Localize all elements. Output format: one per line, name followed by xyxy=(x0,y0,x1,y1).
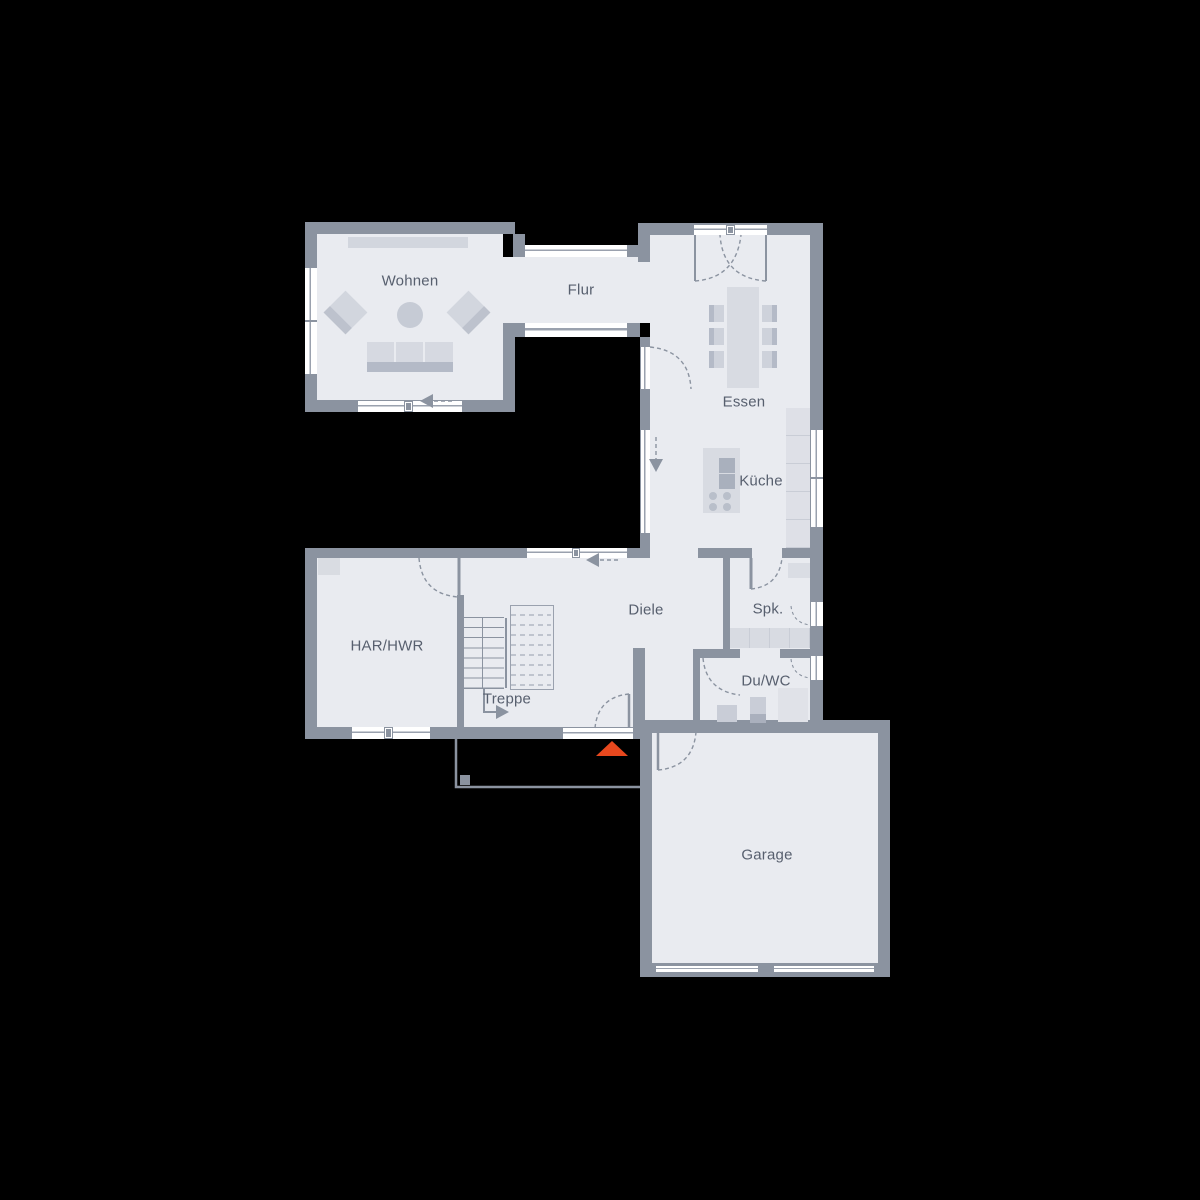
room-label-garage: Garage xyxy=(741,847,792,864)
window-mullion xyxy=(384,727,393,739)
room-label-spk: Spk. xyxy=(753,601,784,618)
floor-opening-diele-kueche xyxy=(650,548,698,558)
dining-chair xyxy=(762,305,777,322)
dining-chair xyxy=(709,305,724,322)
wall-segment xyxy=(638,223,650,262)
window xyxy=(305,322,317,374)
wall-segment xyxy=(693,658,700,727)
hob-burner-icon xyxy=(709,492,717,500)
garage-door-post xyxy=(758,963,774,976)
window xyxy=(525,245,627,257)
toilet xyxy=(750,697,766,723)
dining-chair xyxy=(709,351,724,368)
wall-segment xyxy=(633,648,645,727)
window xyxy=(811,479,823,527)
room-label-essen: Essen xyxy=(723,394,766,411)
floor-opening-flur-essen xyxy=(640,262,650,323)
stair-center-line xyxy=(482,617,483,688)
entrance-arrow-icon xyxy=(596,741,628,756)
dining-chair xyxy=(762,351,777,368)
room-label-du-wc: Du/WC xyxy=(741,673,790,690)
hob-burner-icon xyxy=(709,503,717,511)
stair-upper-flight-dashed xyxy=(510,605,554,690)
hob-burner-icon xyxy=(723,503,731,511)
wall-segment xyxy=(698,548,752,558)
coffee-table xyxy=(397,302,423,328)
wall-segment xyxy=(780,649,810,658)
kitchen-island xyxy=(703,448,740,513)
wall-segment xyxy=(723,558,730,649)
sink xyxy=(717,705,737,722)
kitchen-counter xyxy=(786,408,810,548)
window-mullion xyxy=(404,401,413,412)
french-door-mullion xyxy=(726,225,735,235)
dining-chair xyxy=(709,328,724,345)
wall-garage-right xyxy=(878,720,890,977)
wall-garage-left xyxy=(640,720,652,977)
dining-table xyxy=(727,287,759,388)
hob-burner-icon xyxy=(723,492,731,500)
pantry-fixture xyxy=(788,563,810,578)
utility-fixture xyxy=(318,558,340,575)
window xyxy=(305,268,317,320)
stair-lower-flight xyxy=(462,617,504,689)
window xyxy=(811,656,823,680)
room-label-flur: Flur xyxy=(568,282,595,299)
room-label-kueche: Küche xyxy=(739,473,783,490)
wall-segment xyxy=(305,222,515,234)
sideboard xyxy=(348,237,468,248)
floor-opening-duwc-door xyxy=(740,649,780,658)
window xyxy=(811,602,823,626)
floor-plan: Wohnen Flur Essen Küche Diele HAR/HWR Tr… xyxy=(0,0,1200,1200)
wall-segment xyxy=(305,548,317,739)
door-panel xyxy=(641,347,650,389)
wall-segment xyxy=(782,548,810,558)
stair-handrail xyxy=(505,618,507,688)
wall-segment xyxy=(513,234,525,245)
shower xyxy=(778,688,808,722)
room-label-har-hwr: HAR/HWR xyxy=(350,638,423,655)
sofa xyxy=(367,342,453,372)
entrance-door-sidelight xyxy=(563,728,633,739)
oven-icon xyxy=(719,458,735,473)
dining-chair xyxy=(762,328,777,345)
window xyxy=(525,323,627,337)
room-label-treppe: Treppe xyxy=(483,691,531,708)
window-mullion xyxy=(572,548,580,558)
oven-icon xyxy=(719,474,735,489)
floor-opening-spk-door xyxy=(752,548,782,558)
pantry-shelf xyxy=(730,628,810,648)
wall-segment xyxy=(693,649,740,658)
window xyxy=(811,430,823,477)
room-label-wohnen: Wohnen xyxy=(382,273,439,290)
window xyxy=(641,430,650,533)
canopy-post xyxy=(460,775,470,785)
room-label-diele: Diele xyxy=(628,602,663,619)
